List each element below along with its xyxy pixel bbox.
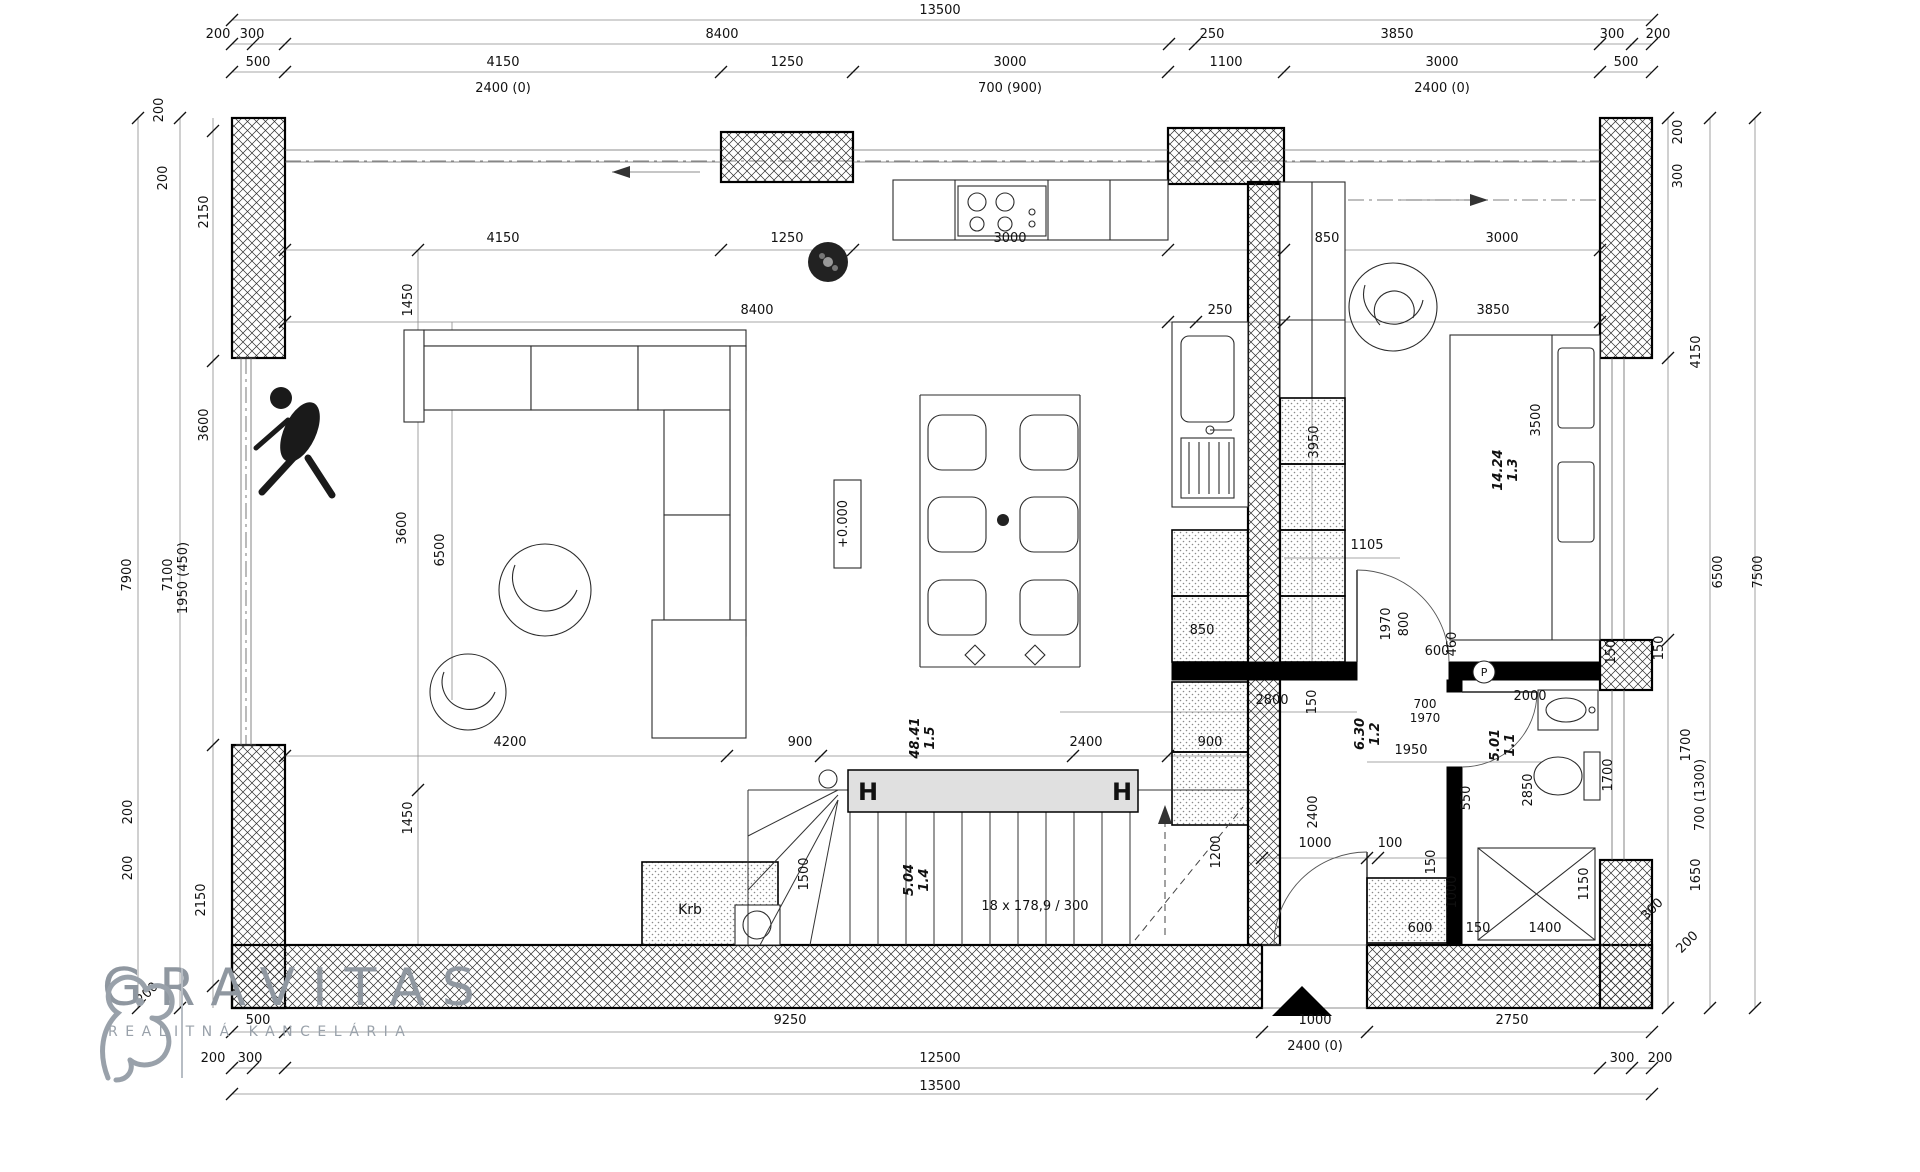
dim-label: 700 (1300) xyxy=(1693,759,1708,831)
dim-label: 13500 xyxy=(919,3,960,18)
dim-label: 700 xyxy=(1414,697,1437,711)
dim-label: 200 xyxy=(1671,120,1686,145)
wall-hall-top-left xyxy=(1172,662,1357,680)
dim-label: H xyxy=(1112,778,1132,806)
dim-label: P xyxy=(1481,666,1488,679)
dim-label: 150 xyxy=(1305,690,1320,715)
dim-label: 2000 xyxy=(1513,689,1546,704)
dim-label: 900 xyxy=(1198,735,1223,750)
dim-label: 4150 xyxy=(1689,335,1704,368)
dim-label: 3600 xyxy=(197,408,212,441)
dim-label: 13500 xyxy=(919,1079,960,1094)
window-living xyxy=(285,150,721,162)
dim-label: 2400 (0) xyxy=(1287,1039,1343,1054)
dim-label: 1970 xyxy=(1410,711,1441,725)
room-label: 5.011.1 xyxy=(1488,729,1518,761)
cooktop xyxy=(958,186,1046,236)
dim-label: 600 xyxy=(1425,644,1450,659)
dim-label: 150 xyxy=(1466,921,1491,936)
dim-label: 4150 xyxy=(486,55,519,70)
ceiling-fan xyxy=(1349,263,1437,351)
dim-label: 8400 xyxy=(740,303,773,318)
dim-label: 18 x 178,9 / 300 xyxy=(981,899,1088,914)
dim-label: 3500 xyxy=(1529,403,1544,436)
dim-label: 850 xyxy=(1190,623,1215,638)
dim-label: 2400 xyxy=(1306,795,1321,828)
dim-label: 3000 xyxy=(993,231,1026,246)
dim-label: 4150 xyxy=(486,231,519,246)
dim-label: 1000 xyxy=(1298,1013,1331,1028)
wall-right-lower xyxy=(1600,860,1652,1008)
stair-beam xyxy=(848,770,1138,812)
entrance-arrow-marker xyxy=(1272,986,1332,1016)
dim-label: 600 xyxy=(1408,921,1433,936)
dim-label: 1700 xyxy=(1601,758,1616,791)
dim-label: 150 xyxy=(1652,636,1667,661)
dim-label: 2150 xyxy=(197,195,212,228)
dim-label: 200 xyxy=(152,98,167,123)
wall-kitchen xyxy=(1248,182,1280,945)
dim-label: +0.000 xyxy=(836,500,851,548)
dim-label: 2150 xyxy=(194,883,209,916)
dim-label: 1200 xyxy=(1209,835,1224,868)
dim-label: 200 xyxy=(201,1051,226,1066)
dim-label: 1700 xyxy=(1679,728,1694,761)
wall-top-left-pillar xyxy=(232,118,285,358)
dim-label: 1100 xyxy=(1209,55,1242,70)
dim-label: 1650 xyxy=(1689,858,1704,891)
dim-label: 3850 xyxy=(1476,303,1509,318)
dim-label: 7100 xyxy=(161,558,176,591)
wall-hall-top-right xyxy=(1449,662,1600,680)
kitchen-sink xyxy=(1172,322,1248,507)
dining-table xyxy=(920,395,1080,667)
logo-lion-graphic xyxy=(88,958,188,1088)
dim-label: 150 xyxy=(1424,850,1439,875)
dim-label: 1000 xyxy=(1445,875,1460,908)
dim-label: 150 xyxy=(1604,640,1619,665)
kitchen-cabinets-right xyxy=(1280,182,1345,662)
dim-label: 3600 xyxy=(395,511,410,544)
dim-label: 7900 xyxy=(120,558,135,591)
dim-label: 250 xyxy=(1208,303,1233,318)
bed xyxy=(1450,335,1600,640)
logo: GRAVITAS REALITNÁ KANCELÁRIA xyxy=(88,958,492,1040)
slide-direction-arrow-left xyxy=(612,166,700,178)
dim-label: 2400 xyxy=(1069,735,1102,750)
dim-label: 300 xyxy=(1610,1051,1635,1066)
dim-label: 1500 xyxy=(797,857,812,890)
dim-label: 8400 xyxy=(705,27,738,42)
dim-label: 3000 xyxy=(1485,231,1518,246)
window-bedroom-right xyxy=(1612,358,1624,640)
room-label: 6.301.2 xyxy=(1353,718,1383,750)
living-room xyxy=(404,242,1080,945)
dim-label: 500 xyxy=(246,55,271,70)
dim-label: 9250 xyxy=(773,1013,806,1028)
dim-label: 1250 xyxy=(770,55,803,70)
dim-label: 3000 xyxy=(993,55,1026,70)
stair-column-marker xyxy=(819,770,837,788)
dim-label: 12500 xyxy=(919,1051,960,1066)
dim-label: H xyxy=(858,778,878,806)
dim-label: 7500 xyxy=(1751,555,1766,588)
dim-label: 300 xyxy=(1600,27,1625,42)
dim-label: 500 xyxy=(1614,55,1639,70)
dim-label: 550 xyxy=(1459,786,1474,811)
dim-label: 1950 (450) xyxy=(176,542,191,614)
window-kitchen xyxy=(853,150,1168,162)
dim-label: 1950 xyxy=(1394,743,1427,758)
dim-label: 100 xyxy=(1378,836,1403,851)
floor-plan-page: 1350020030084002503850300200500415012503… xyxy=(0,0,1920,1172)
wall-bath-pier xyxy=(1447,680,1462,692)
window-bedroom-top xyxy=(1284,150,1600,162)
room-label: 48.411.5 xyxy=(908,717,938,759)
dim-label: 900 xyxy=(788,735,813,750)
dim-label: 200 xyxy=(1648,1051,1673,1066)
armchair-round-1 xyxy=(499,544,591,636)
dim-label: 2750 xyxy=(1495,1013,1528,1028)
dim-label: 6500 xyxy=(1711,555,1726,588)
dim-label: 200 xyxy=(121,800,136,825)
plant xyxy=(808,242,848,282)
wall-top-pier-a xyxy=(721,132,853,182)
dim-label: 200 xyxy=(1673,928,1701,956)
dim-label: 300 xyxy=(238,1051,263,1066)
dim-label: 6500 xyxy=(433,533,448,566)
sofa xyxy=(404,330,746,738)
wall-top-right-pillar xyxy=(1600,118,1652,358)
dim-label: 250 xyxy=(1200,27,1225,42)
armchair-round-2 xyxy=(430,654,506,730)
dim-label: 200 xyxy=(1646,27,1671,42)
dim-label: 200 xyxy=(156,166,171,191)
dim-label: 300 xyxy=(1671,164,1686,189)
fireplace xyxy=(642,862,780,945)
dim-label: 1400 xyxy=(1528,921,1561,936)
stairs-up-arrow xyxy=(1158,805,1172,824)
dim-label: 1450 xyxy=(401,801,416,834)
dim-label: Krb xyxy=(678,902,702,918)
bedroom xyxy=(1349,263,1600,640)
dim-label: 1250 xyxy=(770,231,803,246)
washbasin xyxy=(1538,690,1598,730)
human-figure xyxy=(256,387,332,495)
dim-label: 2400 (0) xyxy=(1414,81,1470,96)
dim-label: 700 (900) xyxy=(978,81,1042,96)
bathroom xyxy=(1367,661,1600,943)
dim-label: 800 xyxy=(1397,612,1412,637)
dim-label: 2850 xyxy=(1521,773,1536,806)
wall-top-pier-b xyxy=(1168,128,1284,184)
dim-label: 3000 xyxy=(1425,55,1458,70)
dim-label: 300 xyxy=(240,27,265,42)
dim-label: 1970 xyxy=(1379,607,1394,640)
dim-label: 850 xyxy=(1315,231,1340,246)
dim-label: 1105 xyxy=(1350,538,1383,553)
dim-label: 4200 xyxy=(493,735,526,750)
dim-label: 2400 (0) xyxy=(475,81,531,96)
dim-label: 3850 xyxy=(1380,27,1413,42)
toilet xyxy=(1534,752,1600,800)
room-label: 5.041.4 xyxy=(902,864,932,896)
dim-label: 200 xyxy=(121,856,136,881)
dim-label: 1150 xyxy=(1577,867,1592,900)
dim-label: 3950 xyxy=(1307,425,1322,458)
dim-label: 1450 xyxy=(401,283,416,316)
dim-label: 1000 xyxy=(1298,836,1331,851)
dim-label: 2800 xyxy=(1255,693,1288,708)
dim-label: 200 xyxy=(206,27,231,42)
axis-lines xyxy=(246,161,1600,745)
